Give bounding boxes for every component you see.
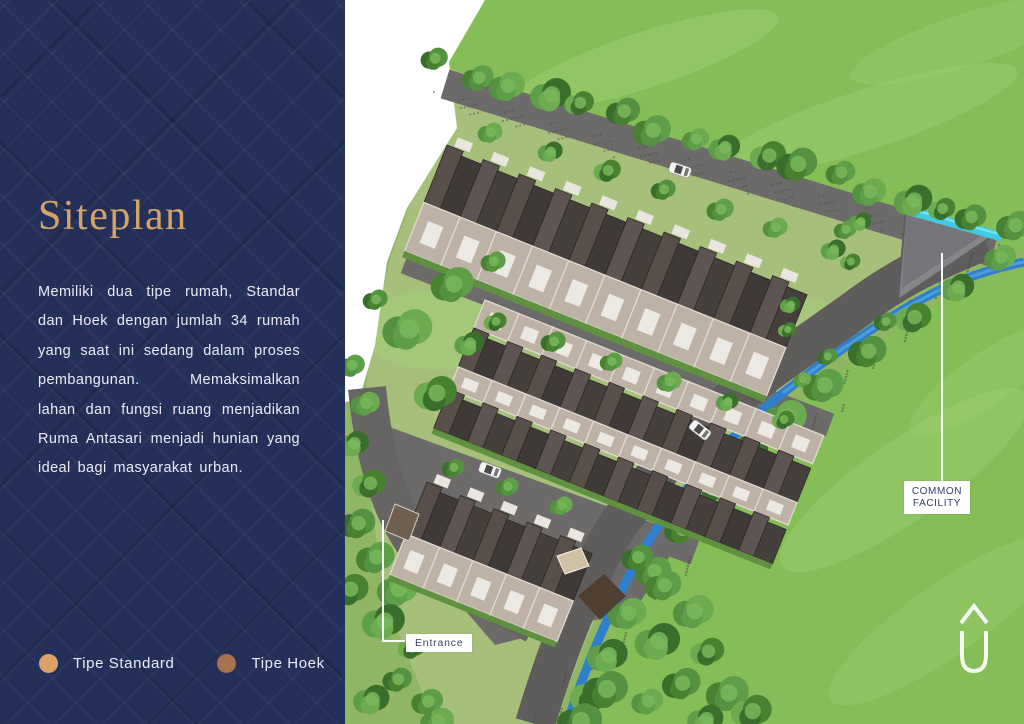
legend-item-hoek: Tipe Hoek <box>217 654 324 673</box>
tipe-hoek-dot-icon <box>217 654 236 673</box>
description-paragraph: Memiliki dua tipe rumah, Standar dan Hoe… <box>38 278 300 484</box>
paragraph-line: ideal bagi masyarakat urban. <box>38 454 300 483</box>
siteplan-map: COMMON FACILITY Entrance <box>345 0 1024 724</box>
page-title: Siteplan <box>38 192 188 240</box>
paragraph-line: pembangunan. Memaksimalkan <box>38 366 300 395</box>
common-facility-line2: FACILITY <box>904 498 970 510</box>
legend: Tipe Standard Tipe Hoek <box>39 654 325 673</box>
paragraph-line: Memiliki dua tipe rumah, Standar <box>38 278 300 307</box>
siteplan-rendering <box>345 0 1024 724</box>
legend-label: Tipe Hoek <box>251 655 324 672</box>
entrance-label: Entrance <box>406 634 472 652</box>
common-facility-label: COMMON FACILITY <box>904 481 970 514</box>
legend-item-standard: Tipe Standard <box>39 654 174 673</box>
paragraph-line: yang saat ini sedang dalam proses <box>38 337 300 366</box>
legend-label: Tipe Standard <box>73 655 174 672</box>
common-facility-line1: COMMON <box>904 486 970 498</box>
tipe-standard-dot-icon <box>39 654 58 673</box>
siteplan-page: Siteplan Memiliki dua tipe rumah, Standa… <box>0 0 1024 724</box>
sidebar: Siteplan Memiliki dua tipe rumah, Standa… <box>0 0 345 724</box>
ruma-logo-icon <box>948 598 1000 680</box>
paragraph-line: lahan dan fungsi ruang menjadikan <box>38 396 300 425</box>
paragraph-line: Ruma Antasari menjadi hunian yang <box>38 425 300 454</box>
paragraph-line: dan Hoek dengan jumlah 34 rumah <box>38 307 300 336</box>
